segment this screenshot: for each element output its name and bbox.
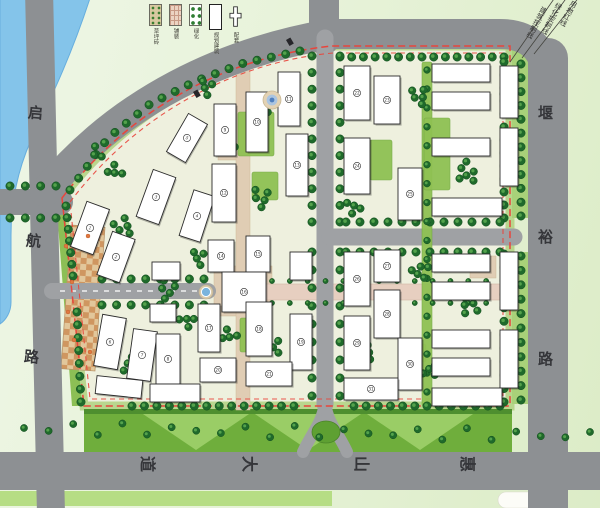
building: [432, 330, 492, 350]
building-number: 20: [215, 367, 221, 372]
building-number: 16: [241, 289, 247, 294]
road-label-char: 裕: [538, 230, 553, 245]
road-label-char: 航: [25, 233, 41, 249]
building-number: 8: [167, 356, 170, 361]
legend-label: 配套: [232, 32, 240, 43]
building: 9: [214, 104, 238, 158]
building: 19: [290, 314, 314, 372]
building-number: 13: [294, 162, 300, 167]
building: 8: [156, 334, 182, 386]
building-number: 27: [384, 263, 390, 268]
building-number: 11: [286, 96, 292, 101]
building: 12: [212, 164, 238, 224]
building-swatch-icon: [209, 4, 222, 30]
building: 13: [286, 134, 310, 198]
building: 17: [198, 304, 222, 354]
building: 22: [344, 66, 372, 122]
building: 28: [374, 290, 402, 340]
map-legend: 草坪砖 铺装 绿化 规划建筑 配套: [148, 4, 243, 54]
building: [150, 384, 202, 404]
building: 31: [344, 378, 400, 402]
building: [150, 304, 178, 324]
building-number: 23: [384, 97, 390, 102]
building: 14: [208, 240, 236, 274]
legend-item-paving: 铺装: [168, 4, 183, 39]
building-number: 10: [254, 119, 260, 124]
building-number: 15: [255, 251, 261, 256]
legend-label: 铺装: [172, 28, 180, 39]
building-number: 9: [224, 127, 227, 132]
building-number: 22: [354, 90, 360, 95]
building: [432, 358, 492, 378]
building-number: 29: [354, 340, 360, 345]
road-label-char: 惠: [459, 456, 475, 472]
building: [152, 262, 182, 282]
road-label-char: 启: [27, 105, 43, 121]
building-number: 24: [354, 163, 360, 168]
building: [432, 64, 492, 84]
road-label-char: 堰: [538, 106, 553, 121]
planting-swatch-icon: [189, 4, 202, 26]
grass-paver-swatch-icon: [149, 4, 162, 26]
building: [432, 254, 492, 274]
building: 15: [246, 236, 272, 274]
building-number: 21: [266, 371, 272, 376]
legend-item-planting: 绿化: [188, 4, 203, 39]
building-number: 28: [384, 311, 390, 316]
legend-item-amenity: 配套: [228, 4, 243, 43]
building: 23: [374, 76, 402, 126]
building: [500, 66, 520, 120]
building: 21: [246, 362, 294, 388]
legend-item-grass-paver: 草坪砖: [148, 4, 163, 45]
road-label-char: 道: [139, 456, 155, 472]
building-number: 30: [407, 361, 413, 366]
building-number: 14: [218, 253, 224, 258]
site-plan-drawing: 1234567891011121314151617181920212223242…: [0, 0, 600, 508]
paving-swatch-icon: [169, 4, 182, 26]
building: [290, 252, 314, 282]
building: [432, 92, 492, 112]
legend-label: 规划建筑: [212, 32, 220, 54]
building: [432, 388, 504, 408]
building: [432, 198, 504, 218]
building-number: 17: [206, 325, 212, 330]
building: [500, 330, 520, 390]
building: 18: [246, 302, 274, 358]
cross-building-swatch-icon: [229, 4, 242, 30]
building: [500, 252, 520, 312]
road-label-char: 山: [353, 456, 369, 472]
site-plan-canvas: 1234567891011121314151617181920212223242…: [0, 0, 600, 508]
building: [432, 282, 492, 302]
building: 20: [200, 358, 238, 384]
building: [500, 128, 520, 188]
legend-item-planned-building: 规划建筑: [208, 4, 223, 54]
building: [432, 138, 492, 158]
building: 26: [344, 252, 372, 308]
building: 29: [344, 316, 372, 372]
building: 27: [374, 250, 402, 284]
building-number: 18: [256, 326, 262, 331]
building-number: 12: [221, 190, 227, 195]
road-label-char: 路: [23, 349, 39, 365]
building: 11: [278, 72, 302, 128]
building: 24: [344, 138, 372, 196]
building: 30: [398, 338, 424, 392]
legend-label: 绿化: [192, 28, 200, 39]
building: 25: [398, 168, 424, 222]
road-label-char: 路: [538, 352, 553, 367]
building-number: 19: [298, 339, 304, 344]
building-number: 26: [354, 276, 360, 281]
building-number: 25: [407, 191, 413, 196]
road-label-char: 大: [241, 456, 257, 472]
legend-label: 草坪砖: [152, 28, 160, 45]
building-number: 31: [368, 386, 374, 391]
